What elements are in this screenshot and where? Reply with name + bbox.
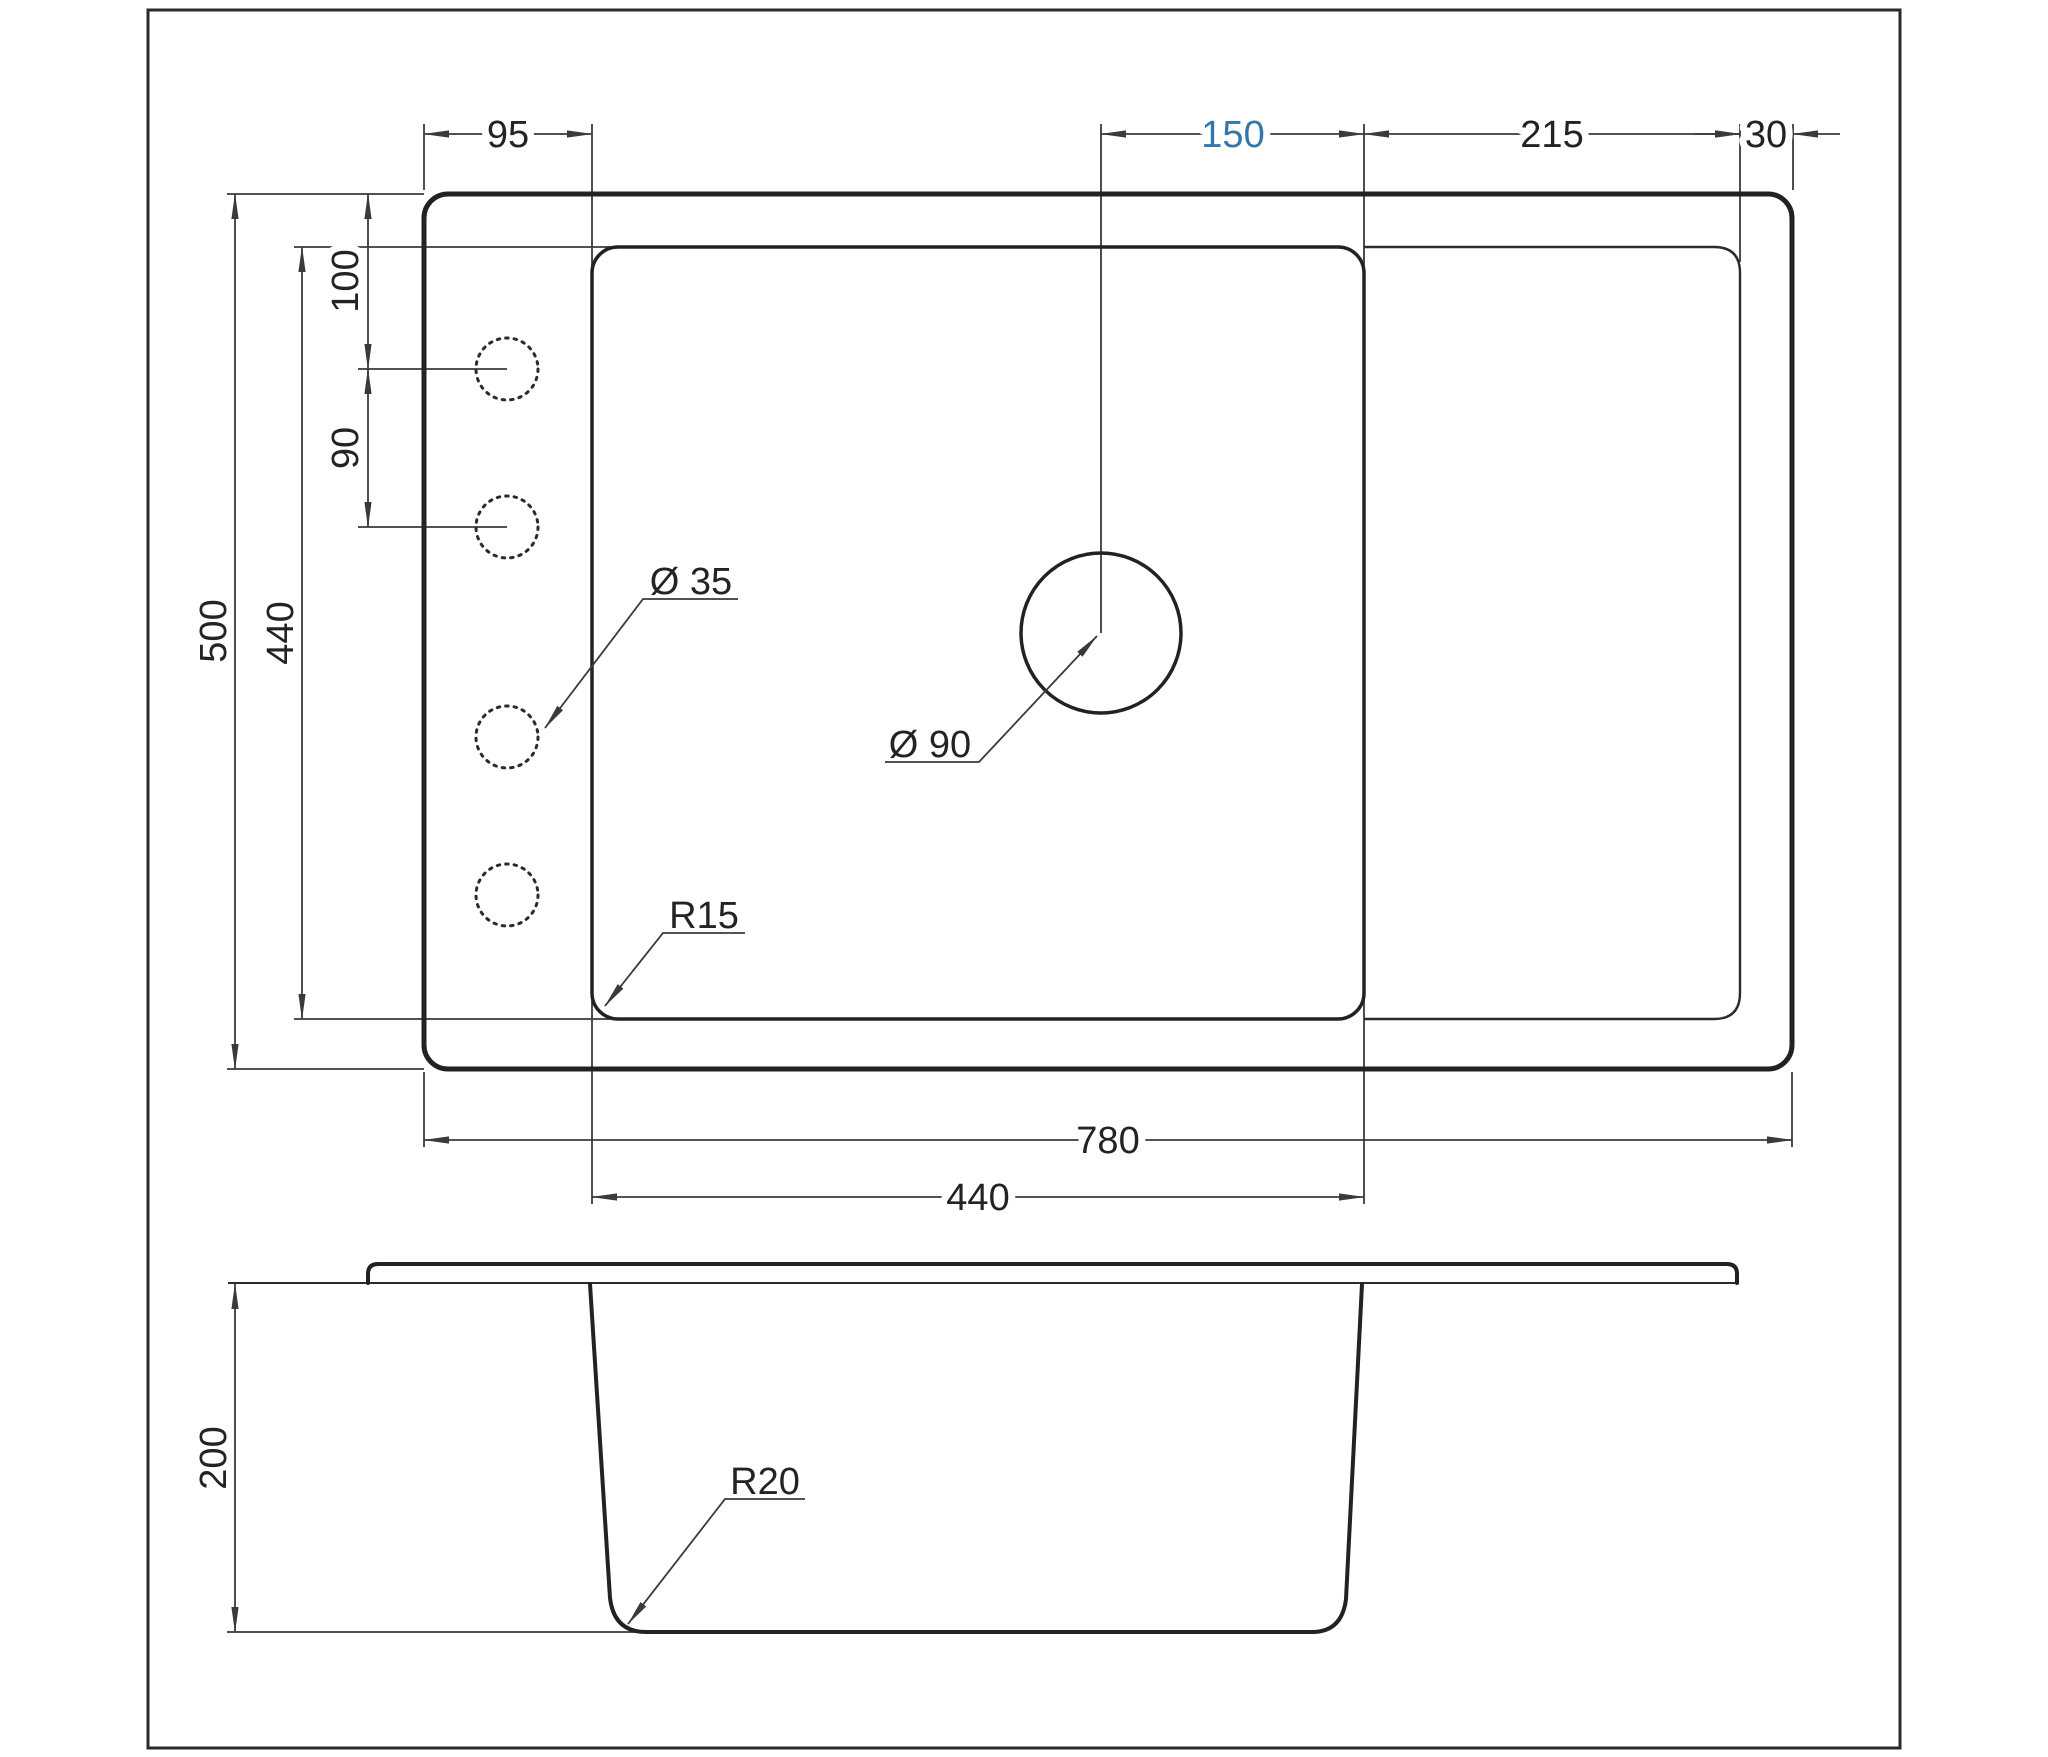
section-rim <box>368 1264 1737 1283</box>
section-view <box>228 1264 1737 1632</box>
dim-780: 780 <box>1076 1120 1139 1162</box>
label-r20: R20 <box>730 1461 800 1503</box>
dim-150: 150 <box>1201 114 1264 156</box>
faucet-hole-4 <box>476 864 538 926</box>
dim-215: 215 <box>1520 114 1583 156</box>
dim-500: 500 <box>193 599 235 662</box>
dim-440-bottom: 440 <box>946 1177 1009 1219</box>
page-border <box>148 10 1900 1748</box>
sink-outer-edge <box>424 194 1792 1069</box>
dim-90: 90 <box>325 427 367 469</box>
section-bowl-profile <box>590 1284 1362 1632</box>
leader-lines <box>545 599 1097 1624</box>
drainboard-edge <box>1364 247 1740 1019</box>
dim-200: 200 <box>193 1426 235 1489</box>
r20-leader <box>628 1499 805 1624</box>
dim-95: 95 <box>487 114 529 156</box>
label-texts: Ø 35 Ø 90 R15 R20 <box>650 561 971 1503</box>
label-r15: R15 <box>669 895 739 937</box>
top-view <box>424 194 1792 1069</box>
dimension-lines <box>235 134 1840 1632</box>
dim-100: 100 <box>325 249 367 312</box>
faucet-hole-3 <box>476 706 538 768</box>
label-hole-diameter: Ø 35 <box>650 561 732 603</box>
dim-30: 30 <box>1745 114 1787 156</box>
dim-440-vertical: 440 <box>260 601 302 664</box>
sink-technical-drawing: 95 150 215 30 500 440 100 90 780 440 200… <box>0 0 2048 1757</box>
hole-dia-leader <box>545 599 738 728</box>
r15-leader <box>605 933 745 1006</box>
label-drain-diameter: Ø 90 <box>889 724 971 766</box>
extension-lines <box>227 124 1793 1632</box>
